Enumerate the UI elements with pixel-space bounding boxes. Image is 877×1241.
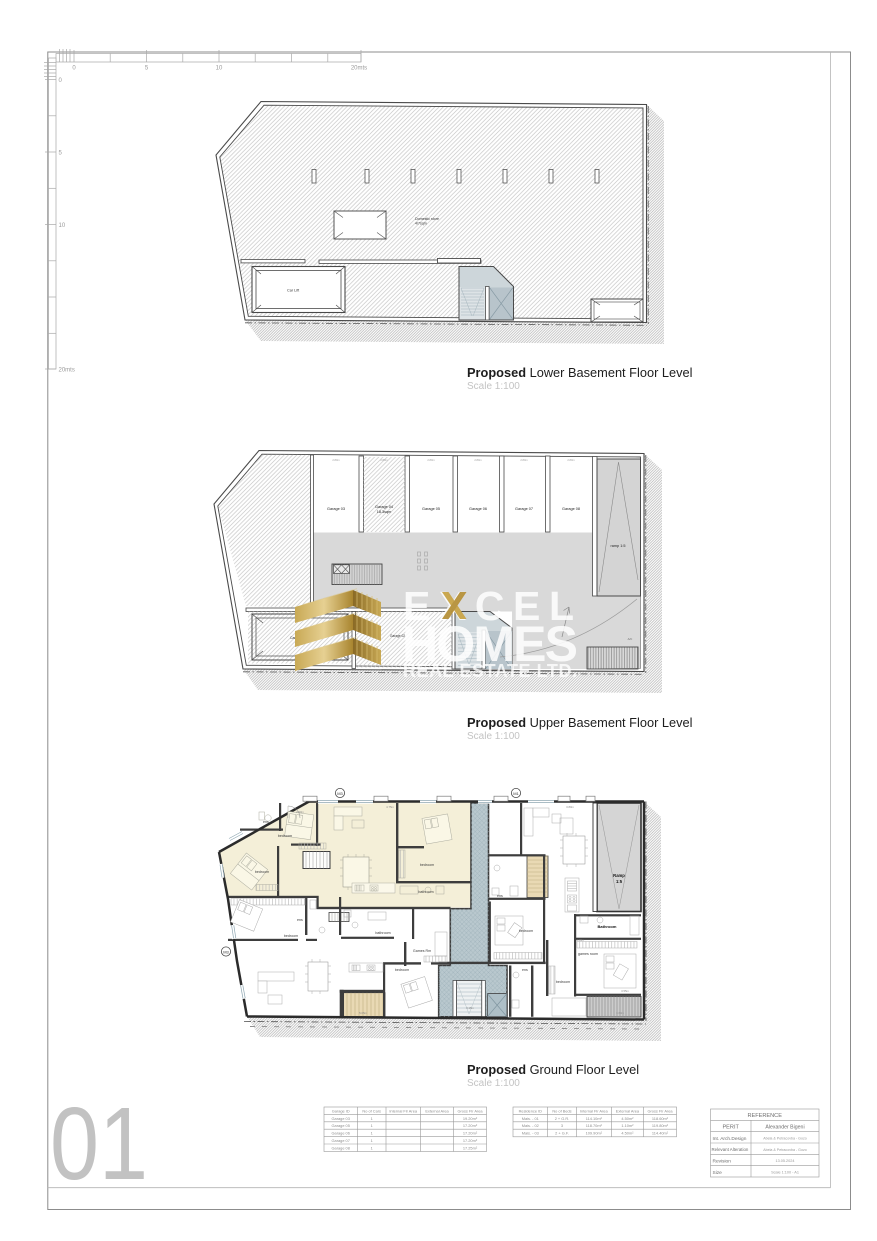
svg-text:2.80m: 2.80m	[474, 458, 481, 462]
svg-text:External Area: External Area	[616, 1108, 640, 1113]
svg-text:REAL ESTATE LTD.: REAL ESTATE LTD.	[403, 661, 577, 681]
svg-text:17.25m²: 17.25m²	[463, 1145, 478, 1150]
svg-text:Scale 1:100 - A1: Scale 1:100 - A1	[771, 1171, 799, 1175]
svg-text:M3: M3	[223, 949, 229, 954]
svg-text:3.55m: 3.55m	[621, 989, 629, 993]
svg-text:Games Rm: Games Rm	[413, 949, 431, 953]
svg-text:Revision: Revision	[713, 1158, 732, 1164]
svg-text:114.10m²: 114.10m²	[586, 1116, 603, 1121]
svg-text:Size: Size	[713, 1170, 723, 1176]
svg-text:Residence ID: Residence ID	[519, 1108, 543, 1113]
svg-text:Domestic store: Domestic store	[415, 217, 439, 221]
svg-text:bedroom: bedroom	[519, 929, 533, 933]
svg-text:Scale 1:100: Scale 1:100	[467, 1078, 520, 1089]
svg-text:bedroom: bedroom	[284, 934, 298, 938]
svg-text:1: 1	[371, 1116, 373, 1121]
svg-text:4.50m²: 4.50m²	[621, 1116, 634, 1121]
svg-text:Scale 1:100: Scale 1:100	[467, 381, 520, 392]
svg-text:Mais. - 02: Mais. - 02	[522, 1123, 539, 1128]
svg-text:2.80m: 2.80m	[427, 458, 434, 462]
svg-text:No of Cars: No of Cars	[362, 1108, 381, 1113]
svg-text:10: 10	[216, 66, 223, 72]
svg-text:No of Beds: No of Beds	[552, 1108, 571, 1113]
svg-text:109.90m²: 109.90m²	[586, 1131, 603, 1136]
svg-text:01: 01	[50, 1086, 148, 1201]
svg-text:Internal Flr Area: Internal Flr Area	[389, 1108, 418, 1113]
svg-text:Proposed Ground Floor Level: Proposed Ground Floor Level	[467, 1062, 639, 1077]
svg-text:Proposed Lower Basement Floor: Proposed Lower Basement Floor Level	[467, 365, 692, 380]
svg-text:bathroom: bathroom	[418, 890, 433, 894]
svg-text:2 + G.F.: 2 + G.F.	[555, 1131, 569, 1136]
svg-text:17.20m²: 17.20m²	[463, 1123, 478, 1128]
svg-text:4.20m: 4.20m	[576, 938, 584, 942]
svg-text:Garage ID: Garage ID	[332, 1108, 350, 1113]
svg-text:Garage 08: Garage 08	[332, 1145, 350, 1150]
svg-text:Garage 06: Garage 06	[332, 1131, 350, 1136]
svg-text:Alexander Bigeni: Alexander Bigeni	[765, 1124, 804, 1130]
svg-text:bedroom: bedroom	[278, 834, 292, 838]
svg-text:2 + G.R.: 2 + G.R.	[555, 1116, 570, 1121]
svg-text:Garage 07: Garage 07	[515, 507, 533, 511]
svg-text:ens: ens	[297, 918, 303, 922]
svg-text:REFERENCE: REFERENCE	[747, 1113, 782, 1119]
svg-text:17.20m²: 17.20m²	[463, 1131, 478, 1136]
svg-text:18.3sqm: 18.3sqm	[377, 510, 392, 514]
svg-text:bedroom: bedroom	[420, 863, 434, 867]
svg-text:Garage 03: Garage 03	[332, 1116, 350, 1121]
svg-text:118.70m²: 118.70m²	[586, 1123, 603, 1128]
svg-text:19.20m²: 19.20m²	[463, 1116, 478, 1121]
svg-text:5.05m: 5.05m	[359, 1011, 367, 1015]
svg-text:118.60m²: 118.60m²	[652, 1116, 669, 1121]
svg-text:17.20m²: 17.20m²	[463, 1138, 478, 1143]
svg-text:Abela & Petracovba - Gozo: Abela & Petracovba - Gozo	[763, 1137, 807, 1141]
svg-text:Garage 08: Garage 08	[562, 507, 580, 511]
svg-text:Garage 07: Garage 07	[332, 1138, 350, 1143]
svg-text:PERIT: PERIT	[722, 1124, 739, 1130]
svg-text:Garage 05: Garage 05	[422, 507, 440, 511]
svg-text:A/C: A/C	[628, 637, 633, 641]
svg-text:119.80m²: 119.80m²	[652, 1123, 669, 1128]
svg-text:M1: M1	[513, 791, 519, 796]
svg-text:Internal Flr Area: Internal Flr Area	[580, 1108, 609, 1113]
svg-text:2.80m: 2.80m	[332, 458, 339, 462]
svg-text:Garage 05: Garage 05	[332, 1123, 350, 1128]
svg-text:2.80m: 2.80m	[520, 458, 527, 462]
svg-text:Garage 03: Garage 03	[327, 507, 345, 511]
svg-text:Car Lift: Car Lift	[287, 289, 300, 293]
svg-text:1.10m²: 1.10m²	[621, 1123, 634, 1128]
svg-text:Mais. - 01: Mais. - 01	[522, 1116, 539, 1121]
svg-text:Garage 06: Garage 06	[469, 507, 487, 511]
svg-text:3: 3	[561, 1123, 563, 1128]
svg-text:Garage 04: Garage 04	[375, 505, 393, 509]
svg-text:Bathroom: Bathroom	[598, 924, 617, 929]
svg-text:3.60m: 3.60m	[616, 1011, 624, 1015]
svg-text:Scale 1:100: Scale 1:100	[467, 731, 520, 742]
svg-text:3.15m: 3.15m	[466, 1006, 474, 1010]
svg-text:1: 1	[371, 1145, 373, 1150]
svg-text:4/7sqm: 4/7sqm	[415, 222, 427, 226]
svg-text:Gross Flr Area: Gross Flr Area	[647, 1108, 673, 1113]
svg-text:114.40m²: 114.40m²	[652, 1131, 669, 1136]
svg-text:Ramp: Ramp	[613, 873, 625, 878]
svg-text:4.50m²: 4.50m²	[621, 1131, 634, 1136]
svg-text:bathroom: bathroom	[375, 931, 390, 935]
svg-text:bedroom: bedroom	[556, 980, 570, 984]
svg-text:3.80m: 3.80m	[566, 805, 574, 809]
svg-text:2.90m: 2.90m	[296, 810, 304, 814]
svg-text:1: 1	[371, 1123, 373, 1128]
svg-text:M3: M3	[337, 791, 343, 796]
svg-text:ens: ens	[263, 820, 269, 824]
svg-text:ramp 1:5: ramp 1:5	[611, 544, 626, 548]
svg-text:2.80m: 2.80m	[380, 458, 387, 462]
svg-text:20mts: 20mts	[59, 368, 75, 374]
svg-text:2.80m: 2.80m	[567, 458, 574, 462]
svg-text:13.05.2024: 13.05.2024	[775, 1159, 794, 1163]
svg-text:Relevant Alteration: Relevant Alteration	[712, 1147, 749, 1152]
svg-text:ens: ens	[497, 894, 503, 898]
svg-text:External Area: External Area	[425, 1108, 449, 1113]
svg-text:bedroom: bedroom	[255, 870, 269, 874]
svg-text:4.75m: 4.75m	[386, 805, 394, 809]
svg-text:20mts: 20mts	[351, 66, 367, 72]
svg-text:1: 1	[371, 1131, 373, 1136]
svg-text:bedroom: bedroom	[395, 968, 409, 972]
svg-text:Gross Flr Area: Gross Flr Area	[457, 1108, 483, 1113]
svg-text:games room: games room	[578, 952, 598, 956]
svg-text:ens: ens	[522, 968, 528, 972]
svg-text:Abela & Petracovba - Gozo: Abela & Petracovba - Gozo	[763, 1148, 807, 1152]
svg-text:10: 10	[59, 223, 66, 229]
svg-text:Int. Arch.Design: Int. Arch.Design	[713, 1136, 747, 1142]
svg-text:Proposed Upper Basement Floor: Proposed Upper Basement Floor Level	[467, 715, 692, 730]
svg-text:Mais. - 03: Mais. - 03	[522, 1131, 539, 1136]
svg-text:1: 1	[371, 1138, 373, 1143]
svg-text:1:5: 1:5	[616, 879, 623, 884]
